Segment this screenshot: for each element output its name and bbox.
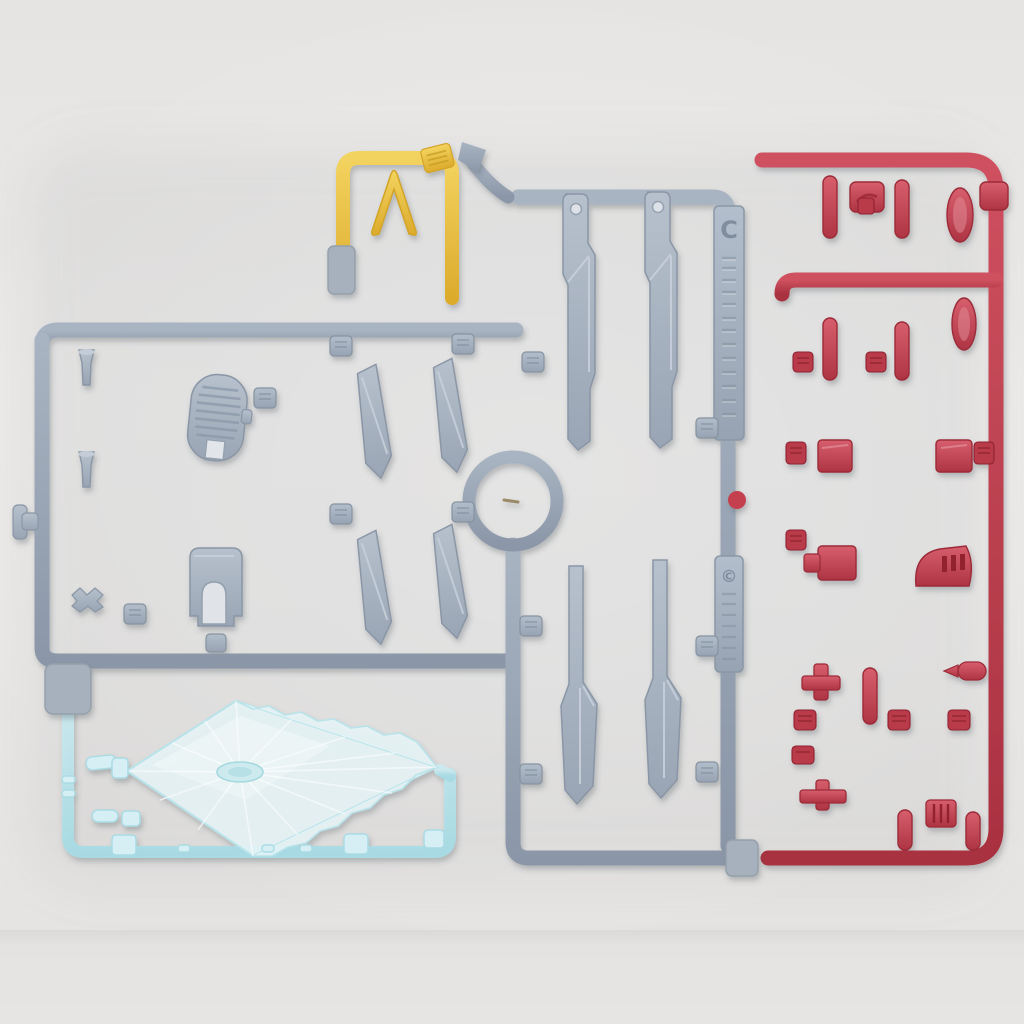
copyright-tag: © <box>715 556 743 672</box>
red-oval-pod-part <box>947 188 973 242</box>
pivot-hole <box>571 204 582 215</box>
runner-letter: C <box>720 216 738 244</box>
red-corner-part <box>980 182 1008 210</box>
red-cone-capsule-part <box>944 662 986 680</box>
gate-gray-to-red <box>726 840 758 876</box>
debris-fleck <box>504 500 518 502</box>
panel-notch <box>205 440 225 460</box>
small-joint-part <box>72 588 103 612</box>
blade-part <box>561 566 597 804</box>
gate-gray-to-blue <box>45 664 91 714</box>
v-fin-antenna-part <box>372 171 416 236</box>
red-oval-pod-part <box>952 298 976 350</box>
wing-fin-part <box>433 358 469 474</box>
thruster-cone-part <box>79 451 95 487</box>
diamond-effect-part <box>127 701 437 856</box>
wing-fin-part <box>357 364 393 480</box>
photo-of-model-kit-sprues: C © <box>0 0 1024 1024</box>
red-t-joint-part <box>802 664 840 700</box>
runner-clear-blue <box>62 701 450 856</box>
copyright-mark: © <box>721 567 738 587</box>
red-t-joint-part <box>800 780 846 810</box>
red-armor-square-part <box>818 440 852 472</box>
runner-yellow <box>343 143 455 298</box>
runner-id-tag: C <box>714 206 744 440</box>
arched-box-part <box>190 548 242 626</box>
leg-frame-part <box>563 194 595 450</box>
vented-oval-panel-part <box>185 372 256 464</box>
red-rect-part <box>804 546 856 580</box>
blade-part <box>645 560 681 798</box>
gate-yellow-to-gray <box>328 246 355 294</box>
wing-fin-part <box>433 524 469 640</box>
thruster-cone-part <box>79 349 95 385</box>
pivot-hole <box>653 202 664 213</box>
runner-red <box>728 160 1008 858</box>
wing-fin-part <box>357 530 393 646</box>
red-arched-vent-part <box>916 546 972 586</box>
sprue-artwork: C © <box>0 0 1024 1024</box>
small-clip-part <box>13 505 38 539</box>
arch-opening <box>202 582 226 624</box>
red-armor-square-part <box>936 440 972 472</box>
red-ribbed-part <box>926 800 956 827</box>
